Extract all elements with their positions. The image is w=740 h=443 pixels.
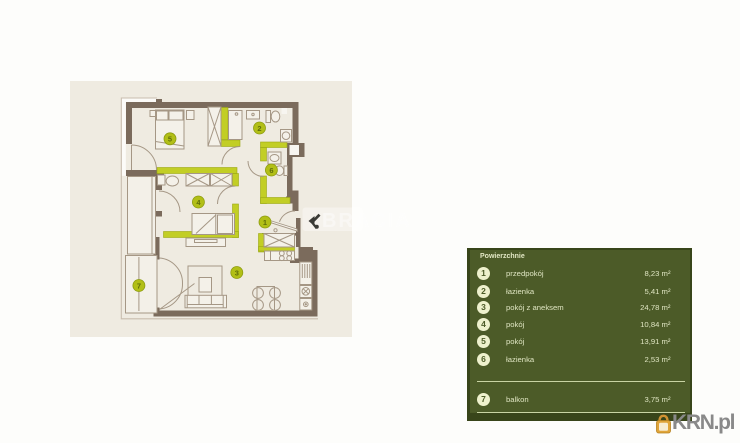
svg-text:3: 3 (235, 268, 239, 277)
svg-text:BRACIA: BRACIA (322, 210, 412, 232)
svg-text:5: 5 (168, 135, 172, 144)
svg-text:7: 7 (137, 281, 141, 290)
svg-text:1: 1 (263, 218, 267, 227)
svg-text:6: 6 (269, 166, 273, 175)
svg-text:2: 2 (257, 124, 261, 133)
